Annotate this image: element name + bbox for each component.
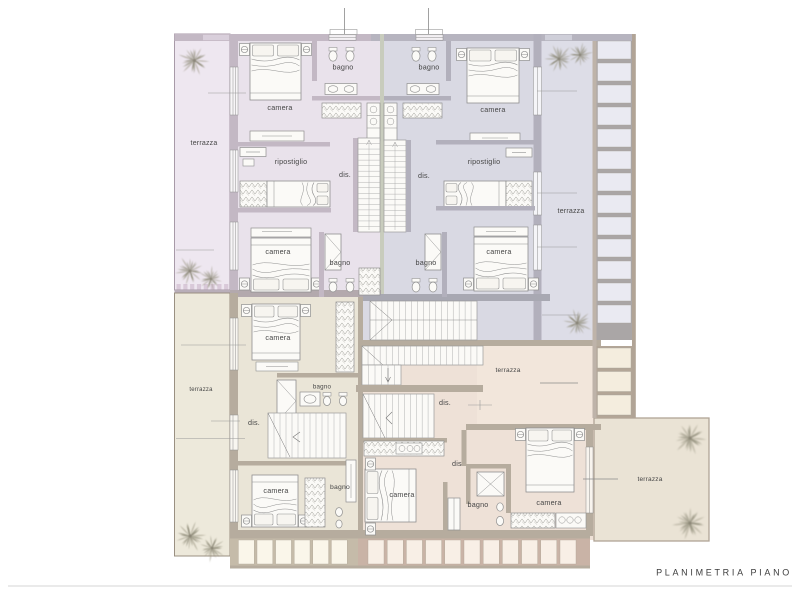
svg-text:ripostiglio: ripostiglio <box>468 157 501 166</box>
svg-text:terrazza: terrazza <box>637 476 662 483</box>
svg-text:camera: camera <box>480 105 505 114</box>
svg-text:terrazza: terrazza <box>189 387 213 393</box>
svg-text:camera: camera <box>536 498 561 507</box>
svg-text:dis.: dis. <box>339 170 351 179</box>
svg-text:terrazza: terrazza <box>191 140 218 147</box>
svg-text:bagno: bagno <box>416 258 437 267</box>
svg-text:camera: camera <box>263 486 288 495</box>
svg-text:bagno: bagno <box>419 63 440 72</box>
svg-text:bagno: bagno <box>330 258 351 267</box>
svg-text:camera: camera <box>267 103 292 112</box>
svg-text:bagno: bagno <box>330 484 350 491</box>
svg-text:camera: camera <box>389 490 414 499</box>
svg-text:dis.: dis. <box>248 418 260 427</box>
svg-text:ripostiglio: ripostiglio <box>275 157 308 166</box>
svg-text:PLANIMETRIA PIANO: PLANIMETRIA PIANO <box>656 568 792 578</box>
svg-text:bagno: bagno <box>333 63 354 72</box>
svg-text:dis.: dis. <box>418 171 430 180</box>
svg-text:dis.: dis. <box>439 398 451 407</box>
svg-text:camera: camera <box>265 333 290 342</box>
svg-text:bagno: bagno <box>468 500 489 509</box>
svg-text:terrazza: terrazza <box>495 367 520 374</box>
svg-text:terrazza: terrazza <box>558 208 585 215</box>
svg-text:bagno: bagno <box>313 384 332 391</box>
svg-text:camera: camera <box>486 247 511 256</box>
svg-text:camera: camera <box>265 247 290 256</box>
